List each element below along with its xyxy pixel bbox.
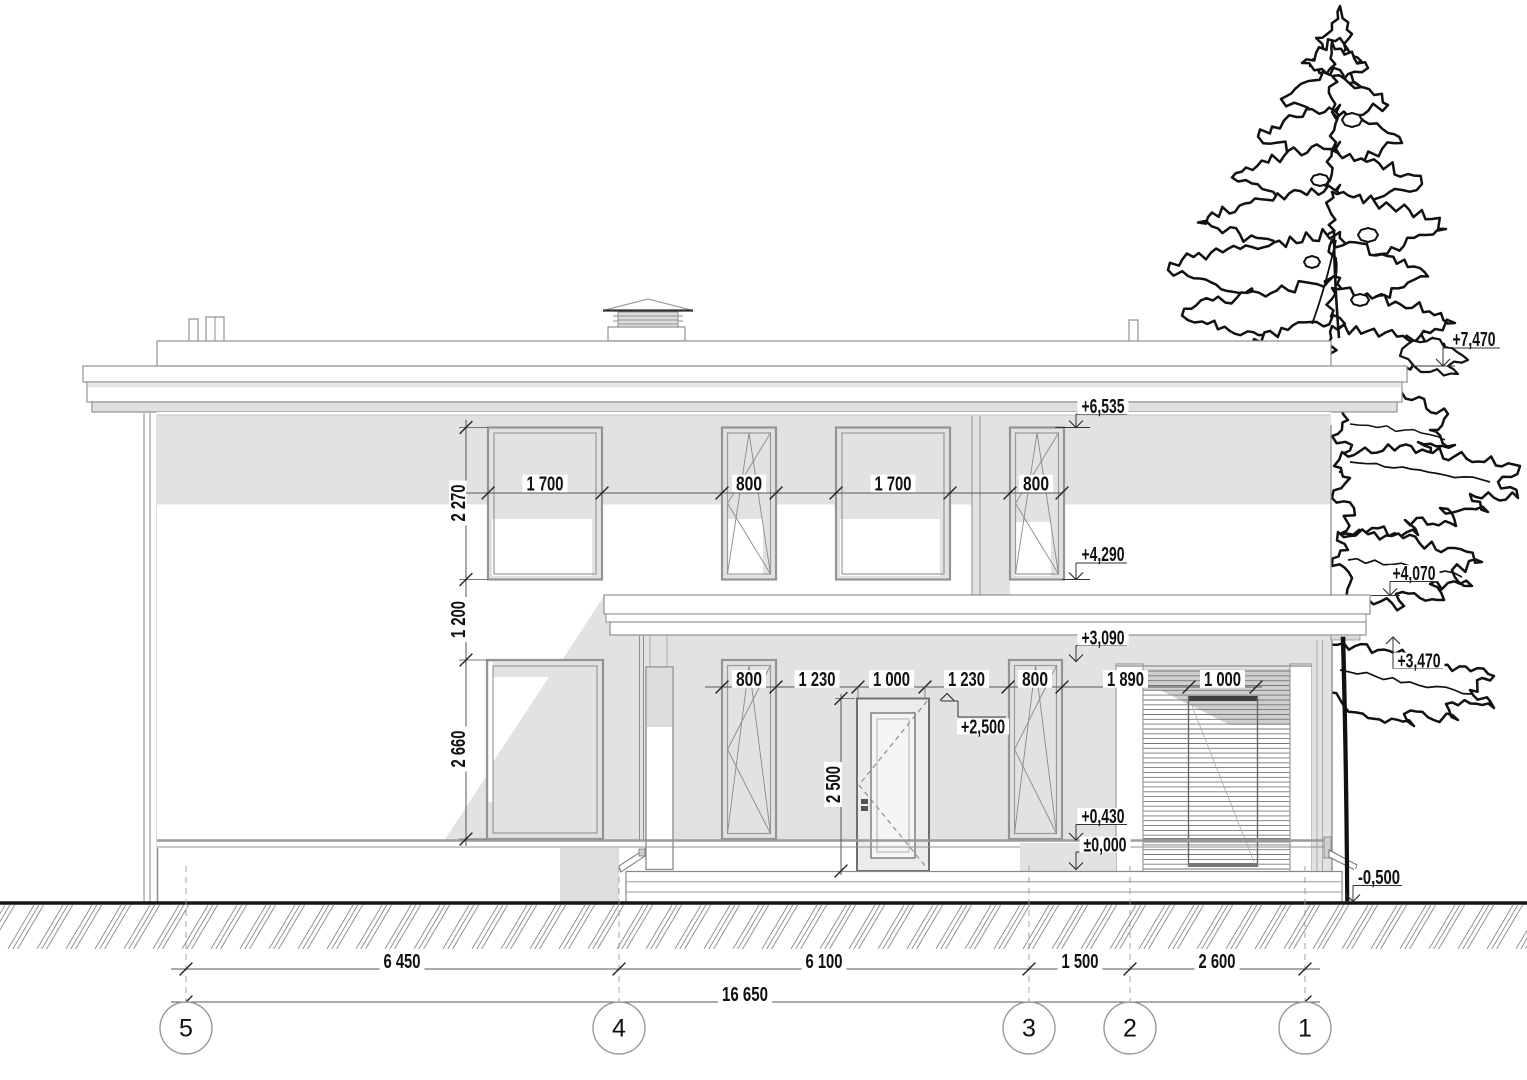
svg-text:800: 800: [1023, 473, 1049, 495]
svg-text:1: 1: [1298, 1015, 1312, 1043]
svg-text:+3,090: +3,090: [1082, 627, 1125, 649]
svg-text:1 000: 1 000: [873, 669, 910, 691]
svg-text:1 890: 1 890: [1107, 669, 1144, 691]
svg-text:1 700: 1 700: [527, 473, 564, 495]
svg-text:2 270: 2 270: [448, 485, 470, 522]
svg-text:+2,500: +2,500: [961, 716, 1005, 738]
svg-text:2: 2: [1123, 1015, 1137, 1043]
svg-text:2 660: 2 660: [448, 731, 470, 768]
svg-text:16 650: 16 650: [722, 984, 768, 1006]
svg-text:800: 800: [1022, 669, 1048, 691]
svg-text:+4,070: +4,070: [1393, 563, 1436, 585]
svg-text:±0,000: ±0,000: [1084, 834, 1127, 856]
svg-text:5: 5: [179, 1015, 193, 1043]
svg-text:1 230: 1 230: [799, 669, 836, 691]
svg-text:+4,290: +4,290: [1082, 544, 1125, 566]
svg-text:800: 800: [736, 473, 762, 495]
svg-text:1 230: 1 230: [948, 669, 985, 691]
svg-text:2 500: 2 500: [823, 766, 845, 803]
svg-text:+3,470: +3,470: [1398, 650, 1441, 672]
svg-text:-0,500: -0,500: [1358, 867, 1400, 889]
svg-text:6 100: 6 100: [806, 951, 843, 973]
svg-text:1 700: 1 700: [875, 473, 912, 495]
svg-text:3: 3: [1022, 1015, 1036, 1043]
svg-text:+6,535: +6,535: [1082, 396, 1125, 418]
svg-text:4: 4: [612, 1015, 626, 1043]
svg-text:1 200: 1 200: [448, 601, 470, 638]
svg-text:6 450: 6 450: [384, 951, 421, 973]
svg-text:1 000: 1 000: [1204, 669, 1241, 691]
svg-text:800: 800: [736, 669, 762, 691]
svg-text:+0,430: +0,430: [1082, 806, 1125, 828]
svg-text:+7,470: +7,470: [1453, 329, 1496, 351]
svg-text:1 500: 1 500: [1062, 951, 1099, 973]
svg-text:2 600: 2 600: [1199, 951, 1236, 973]
